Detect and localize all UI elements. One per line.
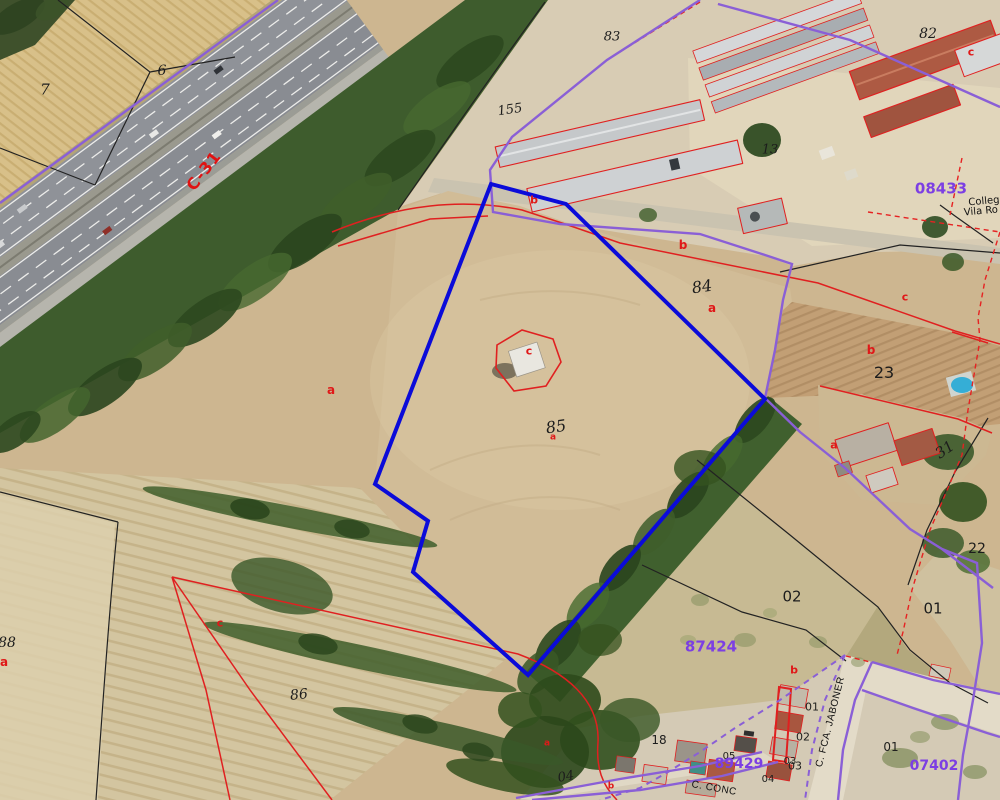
aerial-basemap bbox=[0, 0, 1000, 800]
map-viewport[interactable]: 76C-311558382c08433CollegVila Ro13bb84ac… bbox=[0, 0, 1000, 800]
swimming-pool bbox=[951, 377, 973, 393]
